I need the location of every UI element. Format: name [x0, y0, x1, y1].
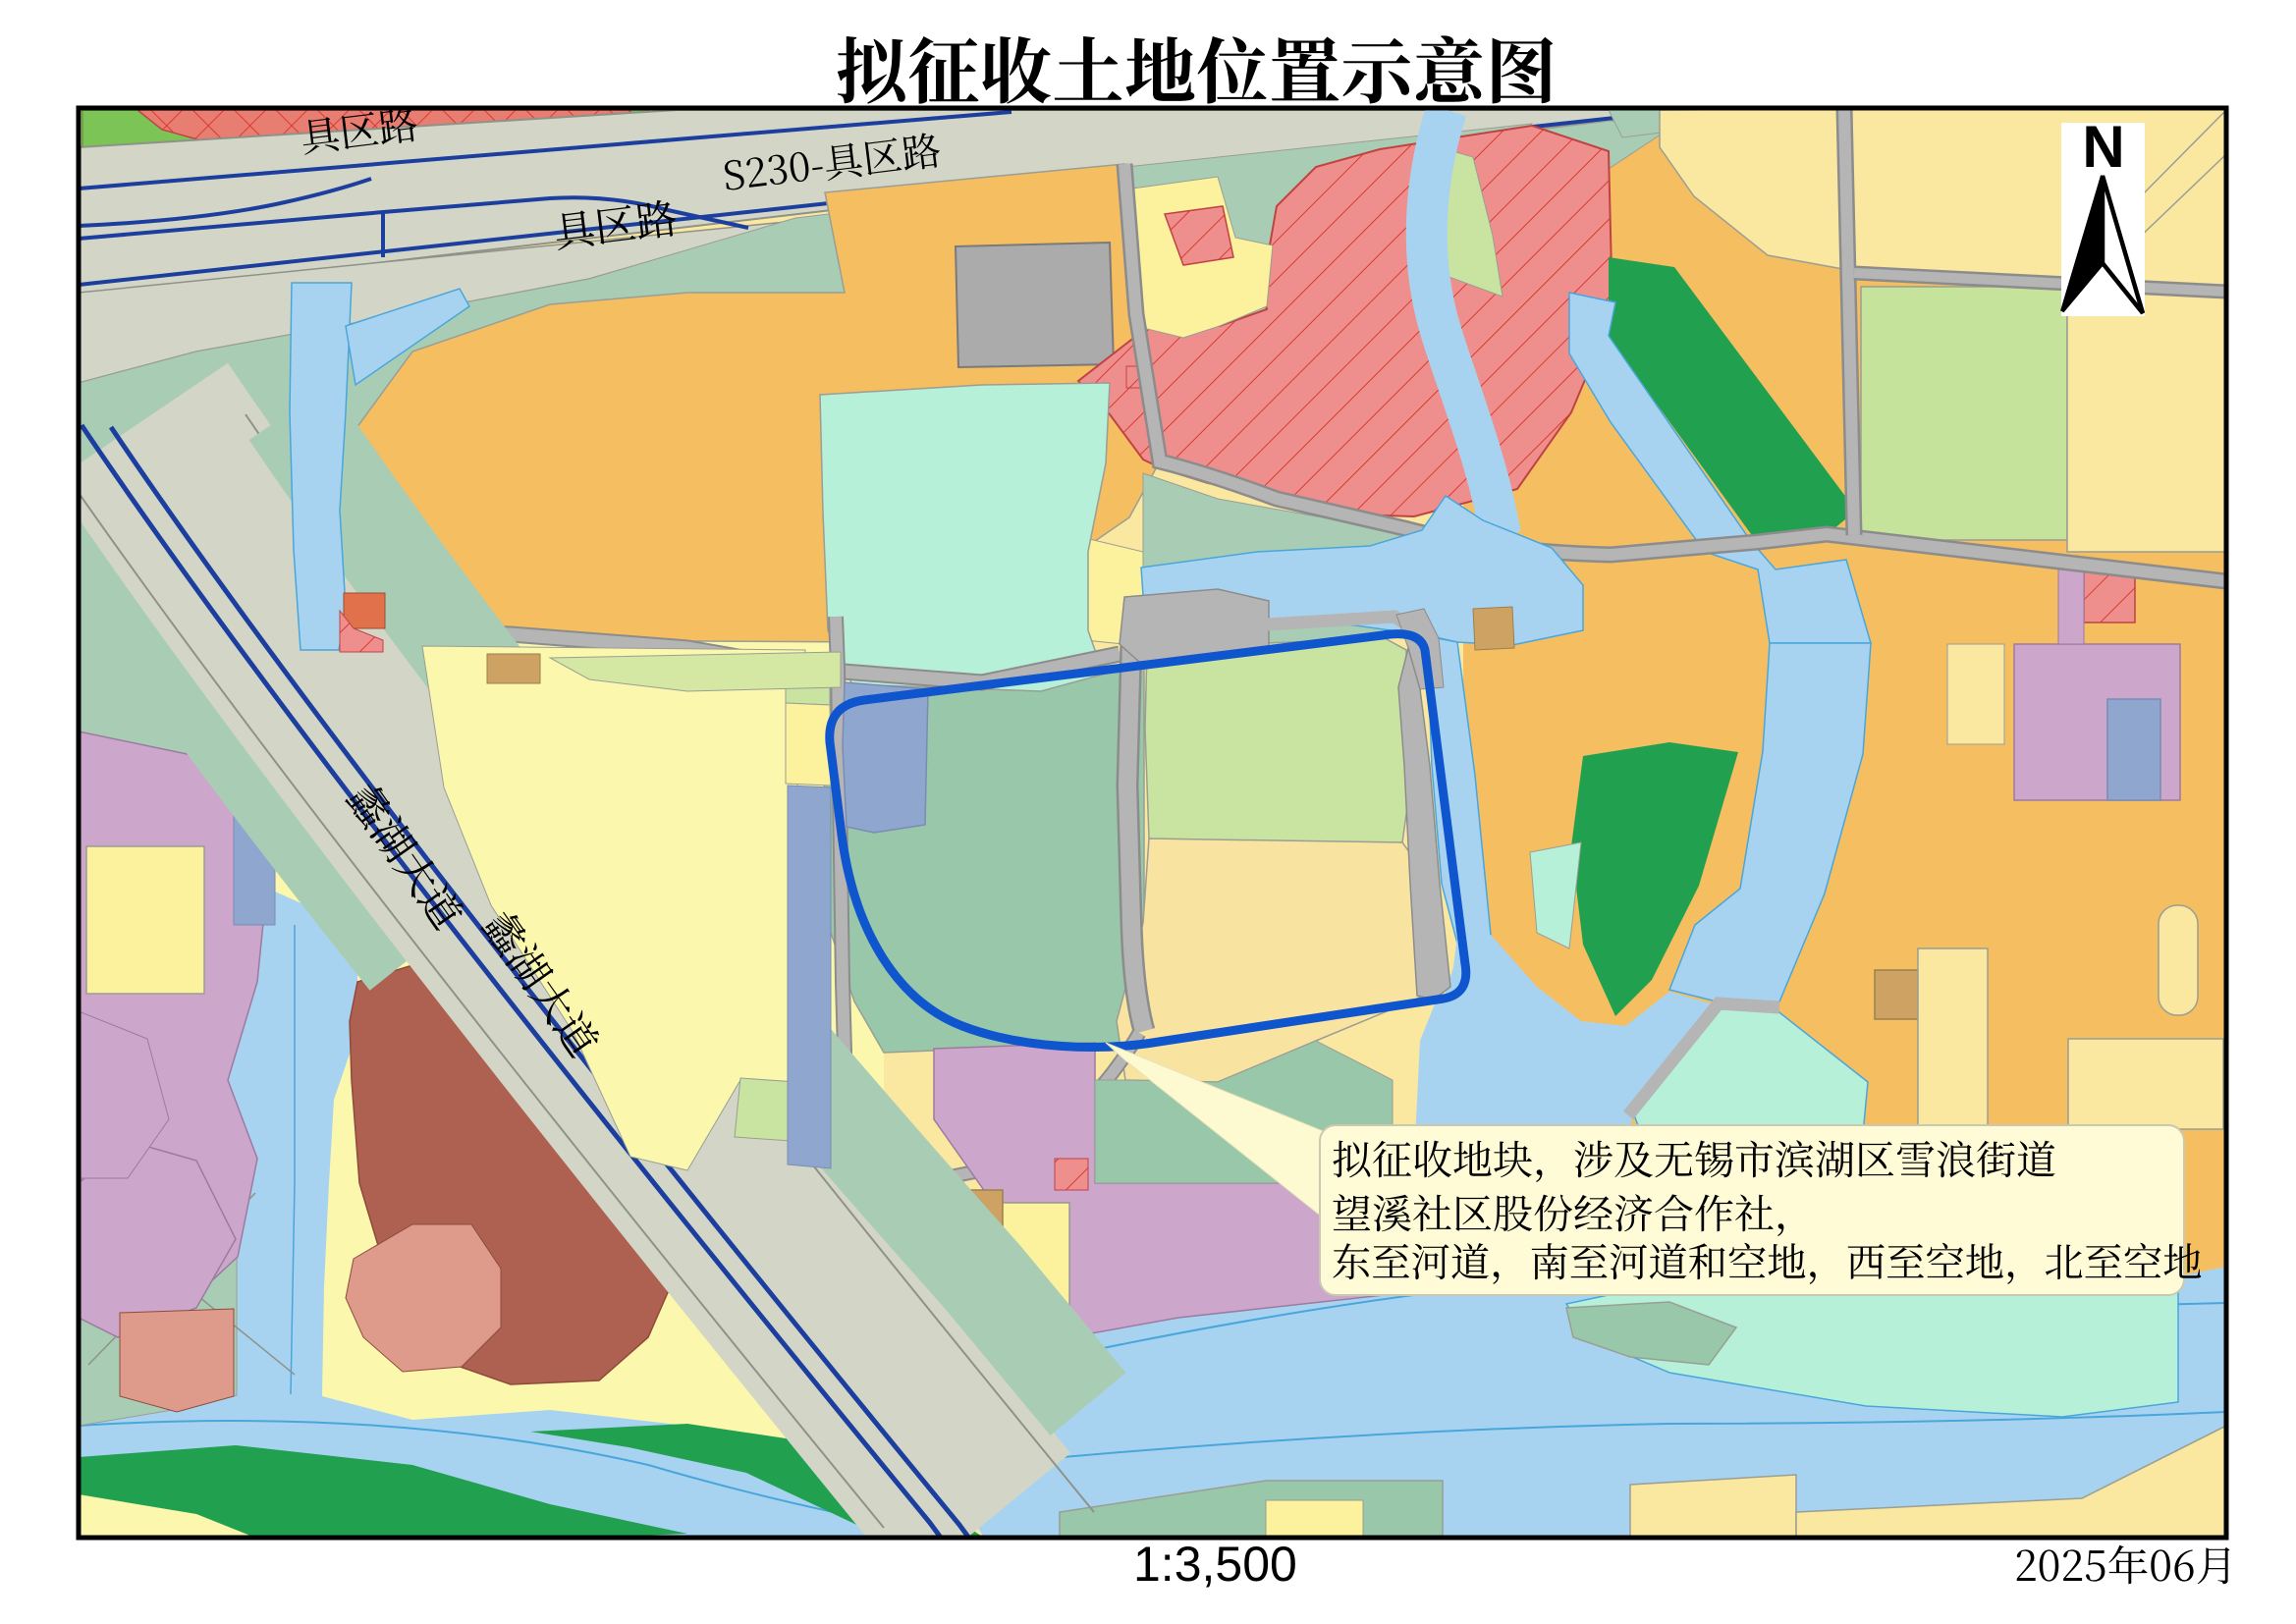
svg-text:N: N — [2082, 114, 2124, 180]
svg-text:1:3,500: 1:3,500 — [1133, 1537, 1297, 1592]
